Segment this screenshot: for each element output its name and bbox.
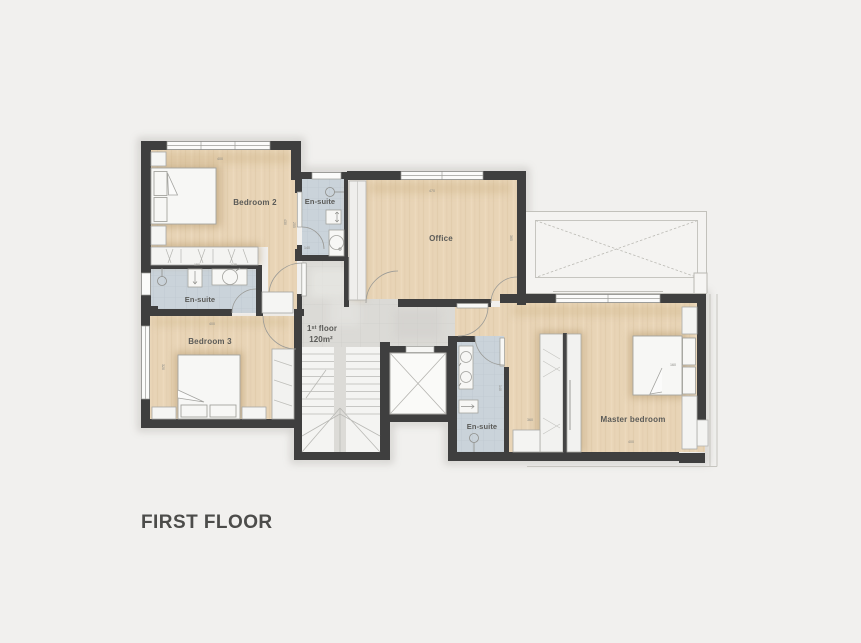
svg-text:Bedroom 2: Bedroom 2 (233, 198, 277, 207)
svg-text:360: 360 (527, 418, 533, 422)
svg-text:255: 255 (292, 222, 296, 228)
svg-text:FIRST FLOOR: FIRST FLOOR (141, 512, 273, 533)
svg-text:430: 430 (283, 219, 287, 225)
svg-text:365: 365 (509, 235, 513, 241)
svg-text:Bedroom 3: Bedroom 3 (188, 337, 232, 346)
svg-text:140: 140 (304, 246, 310, 250)
svg-text:1ˢᵗ floor: 1ˢᵗ floor (307, 324, 337, 333)
svg-text:400: 400 (209, 322, 215, 326)
svg-text:135: 135 (231, 263, 237, 267)
svg-text:Master bedroom: Master bedroom (600, 415, 665, 424)
svg-text:470: 470 (429, 189, 435, 193)
svg-text:140: 140 (498, 385, 502, 391)
svg-text:120m²: 120m² (309, 335, 333, 344)
svg-text:En-suite: En-suite (467, 422, 497, 431)
svg-text:En-suite: En-suite (185, 295, 215, 304)
svg-text:En-suite: En-suite (305, 197, 335, 206)
svg-text:400: 400 (217, 157, 223, 161)
svg-text:400: 400 (628, 440, 634, 444)
svg-text:160: 160 (670, 363, 676, 367)
svg-text:Office: Office (429, 234, 453, 243)
svg-text:150: 150 (194, 263, 200, 267)
svg-text:320: 320 (161, 364, 165, 370)
